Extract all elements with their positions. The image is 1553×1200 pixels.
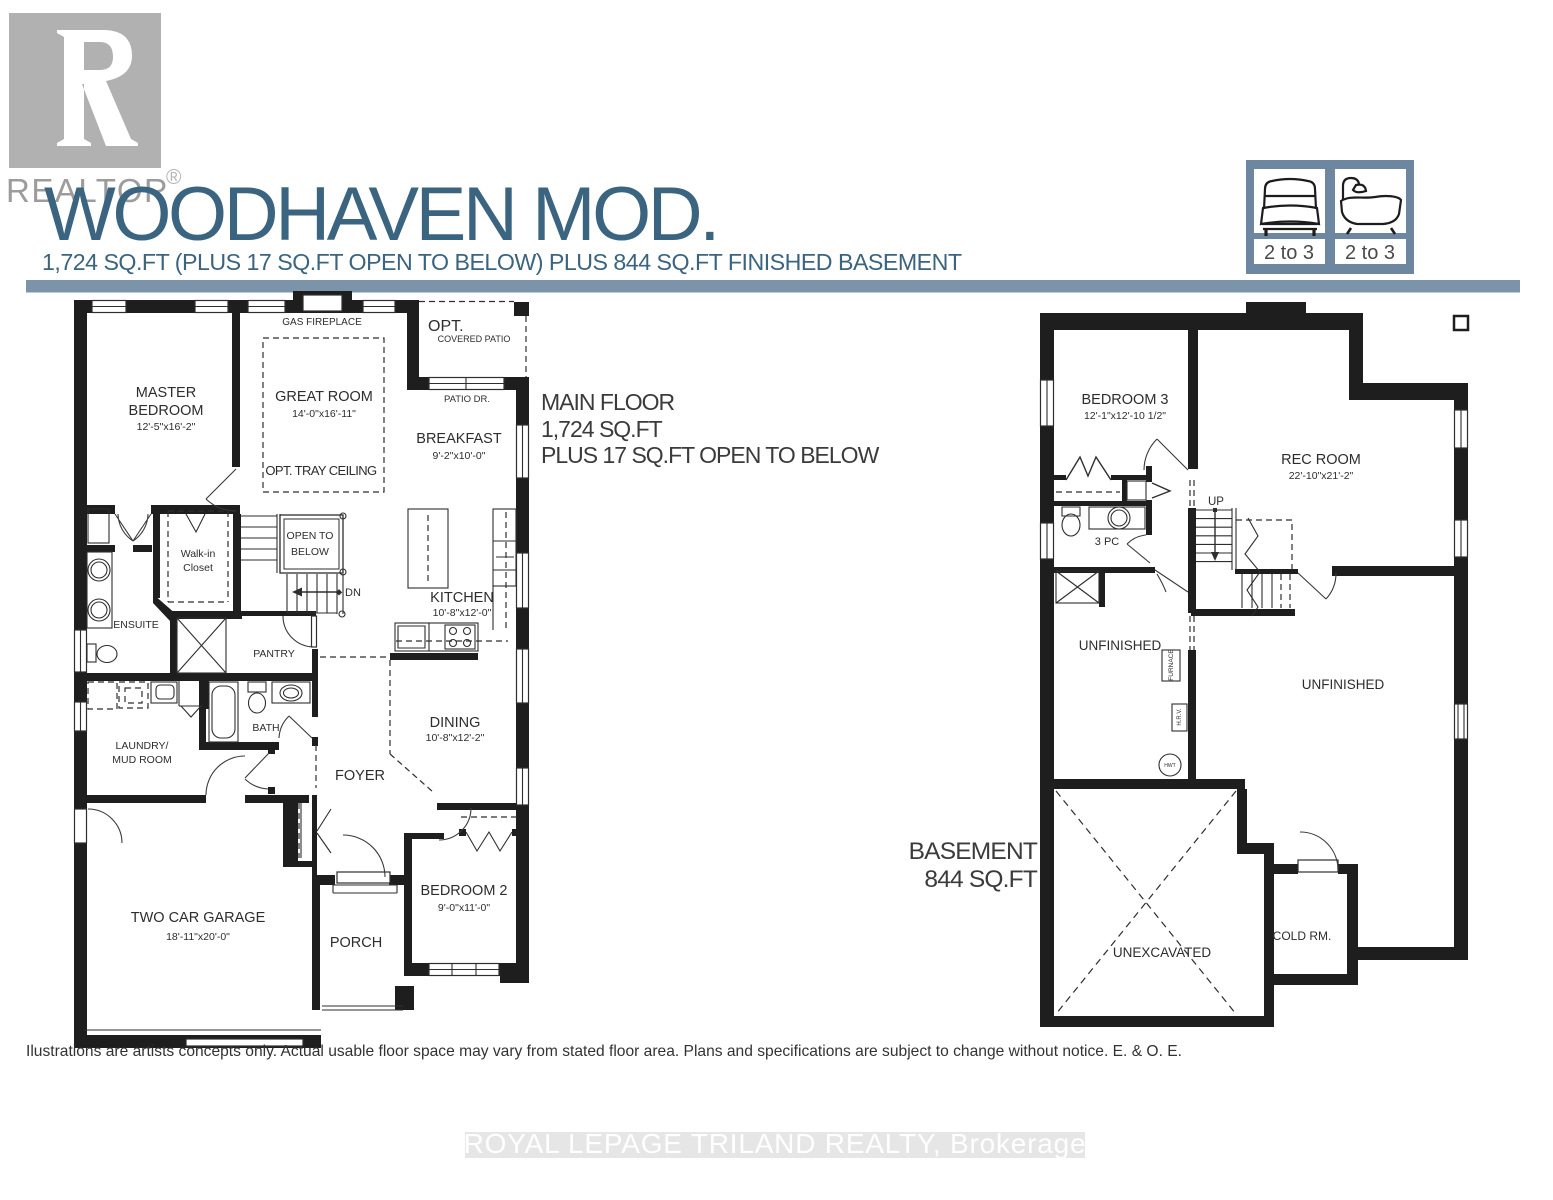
svg-text:12'-5"x16'-2": 12'-5"x16'-2" <box>137 421 196 433</box>
svg-text:DN: DN <box>345 587 361 599</box>
svg-text:WOODHAVEN MOD.: WOODHAVEN MOD. <box>44 172 717 257</box>
svg-text:GAS FIREPLACE: GAS FIREPLACE <box>282 317 362 328</box>
svg-text:BREAKFAST: BREAKFAST <box>416 431 502 447</box>
svg-text:REC ROOM: REC ROOM <box>1281 452 1361 468</box>
svg-text:FURNACE: FURNACE <box>1168 649 1175 681</box>
svg-text:PANTRY: PANTRY <box>253 648 295 660</box>
svg-text:22'-10"x21'-2": 22'-10"x21'-2" <box>1289 470 1354 482</box>
svg-text:PLUS 17 SQ.FT OPEN TO BELOW: PLUS 17 SQ.FT OPEN TO BELOW <box>541 442 880 468</box>
svg-text:ENSUITE: ENSUITE <box>113 619 159 631</box>
svg-text:UP: UP <box>1208 496 1224 508</box>
svg-text:9'-0"x11'-0": 9'-0"x11'-0" <box>438 902 490 914</box>
svg-text:UNEXCAVATED: UNEXCAVATED <box>1113 945 1212 960</box>
svg-text:BEDROOM 3: BEDROOM 3 <box>1081 392 1168 408</box>
svg-text:LAUNDRY/: LAUNDRY/ <box>116 740 169 752</box>
svg-text:BEDROOM 2: BEDROOM 2 <box>420 883 507 899</box>
svg-text:ROYAL LEPAGE TRILAND REALTY, B: ROYAL LEPAGE TRILAND REALTY, Brokerage <box>464 1128 1087 1159</box>
svg-text:1,724 SQ.FT (PLUS 17 SQ.FT OPE: 1,724 SQ.FT (PLUS 17 SQ.FT OPEN TO BELOW… <box>42 249 962 275</box>
svg-text:12'-1"x12'-10 1/2": 12'-1"x12'-10 1/2" <box>1084 410 1166 422</box>
svg-text:COVERED PATIO: COVERED PATIO <box>438 334 511 344</box>
svg-text:9'-2"x10'-0": 9'-2"x10'-0" <box>433 450 486 462</box>
svg-text:OPT. TRAY CEILING: OPT. TRAY CEILING <box>265 463 377 478</box>
svg-text:UNFINISHED: UNFINISHED <box>1079 638 1162 653</box>
svg-text:FOYER: FOYER <box>335 768 385 784</box>
svg-text:UNFINISHED: UNFINISHED <box>1302 677 1385 692</box>
svg-text:GREAT ROOM: GREAT ROOM <box>275 389 373 405</box>
svg-text:OPEN TO: OPEN TO <box>287 530 334 542</box>
svg-text:BEDROOM: BEDROOM <box>129 403 204 419</box>
svg-text:PORCH: PORCH <box>330 935 382 951</box>
svg-text:MASTER: MASTER <box>136 385 196 401</box>
svg-text:H.R.V.: H.R.V. <box>1177 708 1183 725</box>
svg-text:DINING: DINING <box>430 715 481 731</box>
svg-text:BATH: BATH <box>252 722 279 734</box>
svg-text:HWT: HWT <box>1164 763 1175 769</box>
svg-text:BELOW: BELOW <box>291 546 329 558</box>
svg-text:COLD RM.: COLD RM. <box>1273 929 1332 943</box>
svg-text:KITCHEN: KITCHEN <box>430 590 494 606</box>
svg-text:TWO CAR GARAGE: TWO CAR GARAGE <box>131 910 266 926</box>
svg-text:1,724 SQ.FT: 1,724 SQ.FT <box>541 416 663 442</box>
svg-text:18'-11"x20'-0": 18'-11"x20'-0" <box>166 931 230 943</box>
svg-text:2 to 3: 2 to 3 <box>1345 242 1395 264</box>
svg-text:Walk-in: Walk-in <box>181 548 216 560</box>
svg-text:MAIN FLOOR: MAIN FLOOR <box>541 389 675 415</box>
svg-text:Ilustrations are artists conce: Ilustrations are artists concepts only. … <box>26 1043 1182 1060</box>
svg-text:14'-0"x16'-11": 14'-0"x16'-11" <box>292 408 356 420</box>
svg-text:BASEMENT: BASEMENT <box>909 838 1038 865</box>
svg-text:OPT.: OPT. <box>428 318 464 335</box>
svg-text:3 PC: 3 PC <box>1095 536 1120 548</box>
svg-text:2 to 3: 2 to 3 <box>1264 242 1314 264</box>
svg-text:Closet: Closet <box>183 562 213 574</box>
svg-text:PATIO DR.: PATIO DR. <box>444 394 490 405</box>
svg-text:10'-8"x12'-2": 10'-8"x12'-2" <box>426 732 485 744</box>
svg-text:844 SQ.FT: 844 SQ.FT <box>924 866 1037 893</box>
svg-text:MUD ROOM: MUD ROOM <box>112 754 172 766</box>
svg-text:10'-8"x12'-0": 10'-8"x12'-0" <box>433 607 492 619</box>
